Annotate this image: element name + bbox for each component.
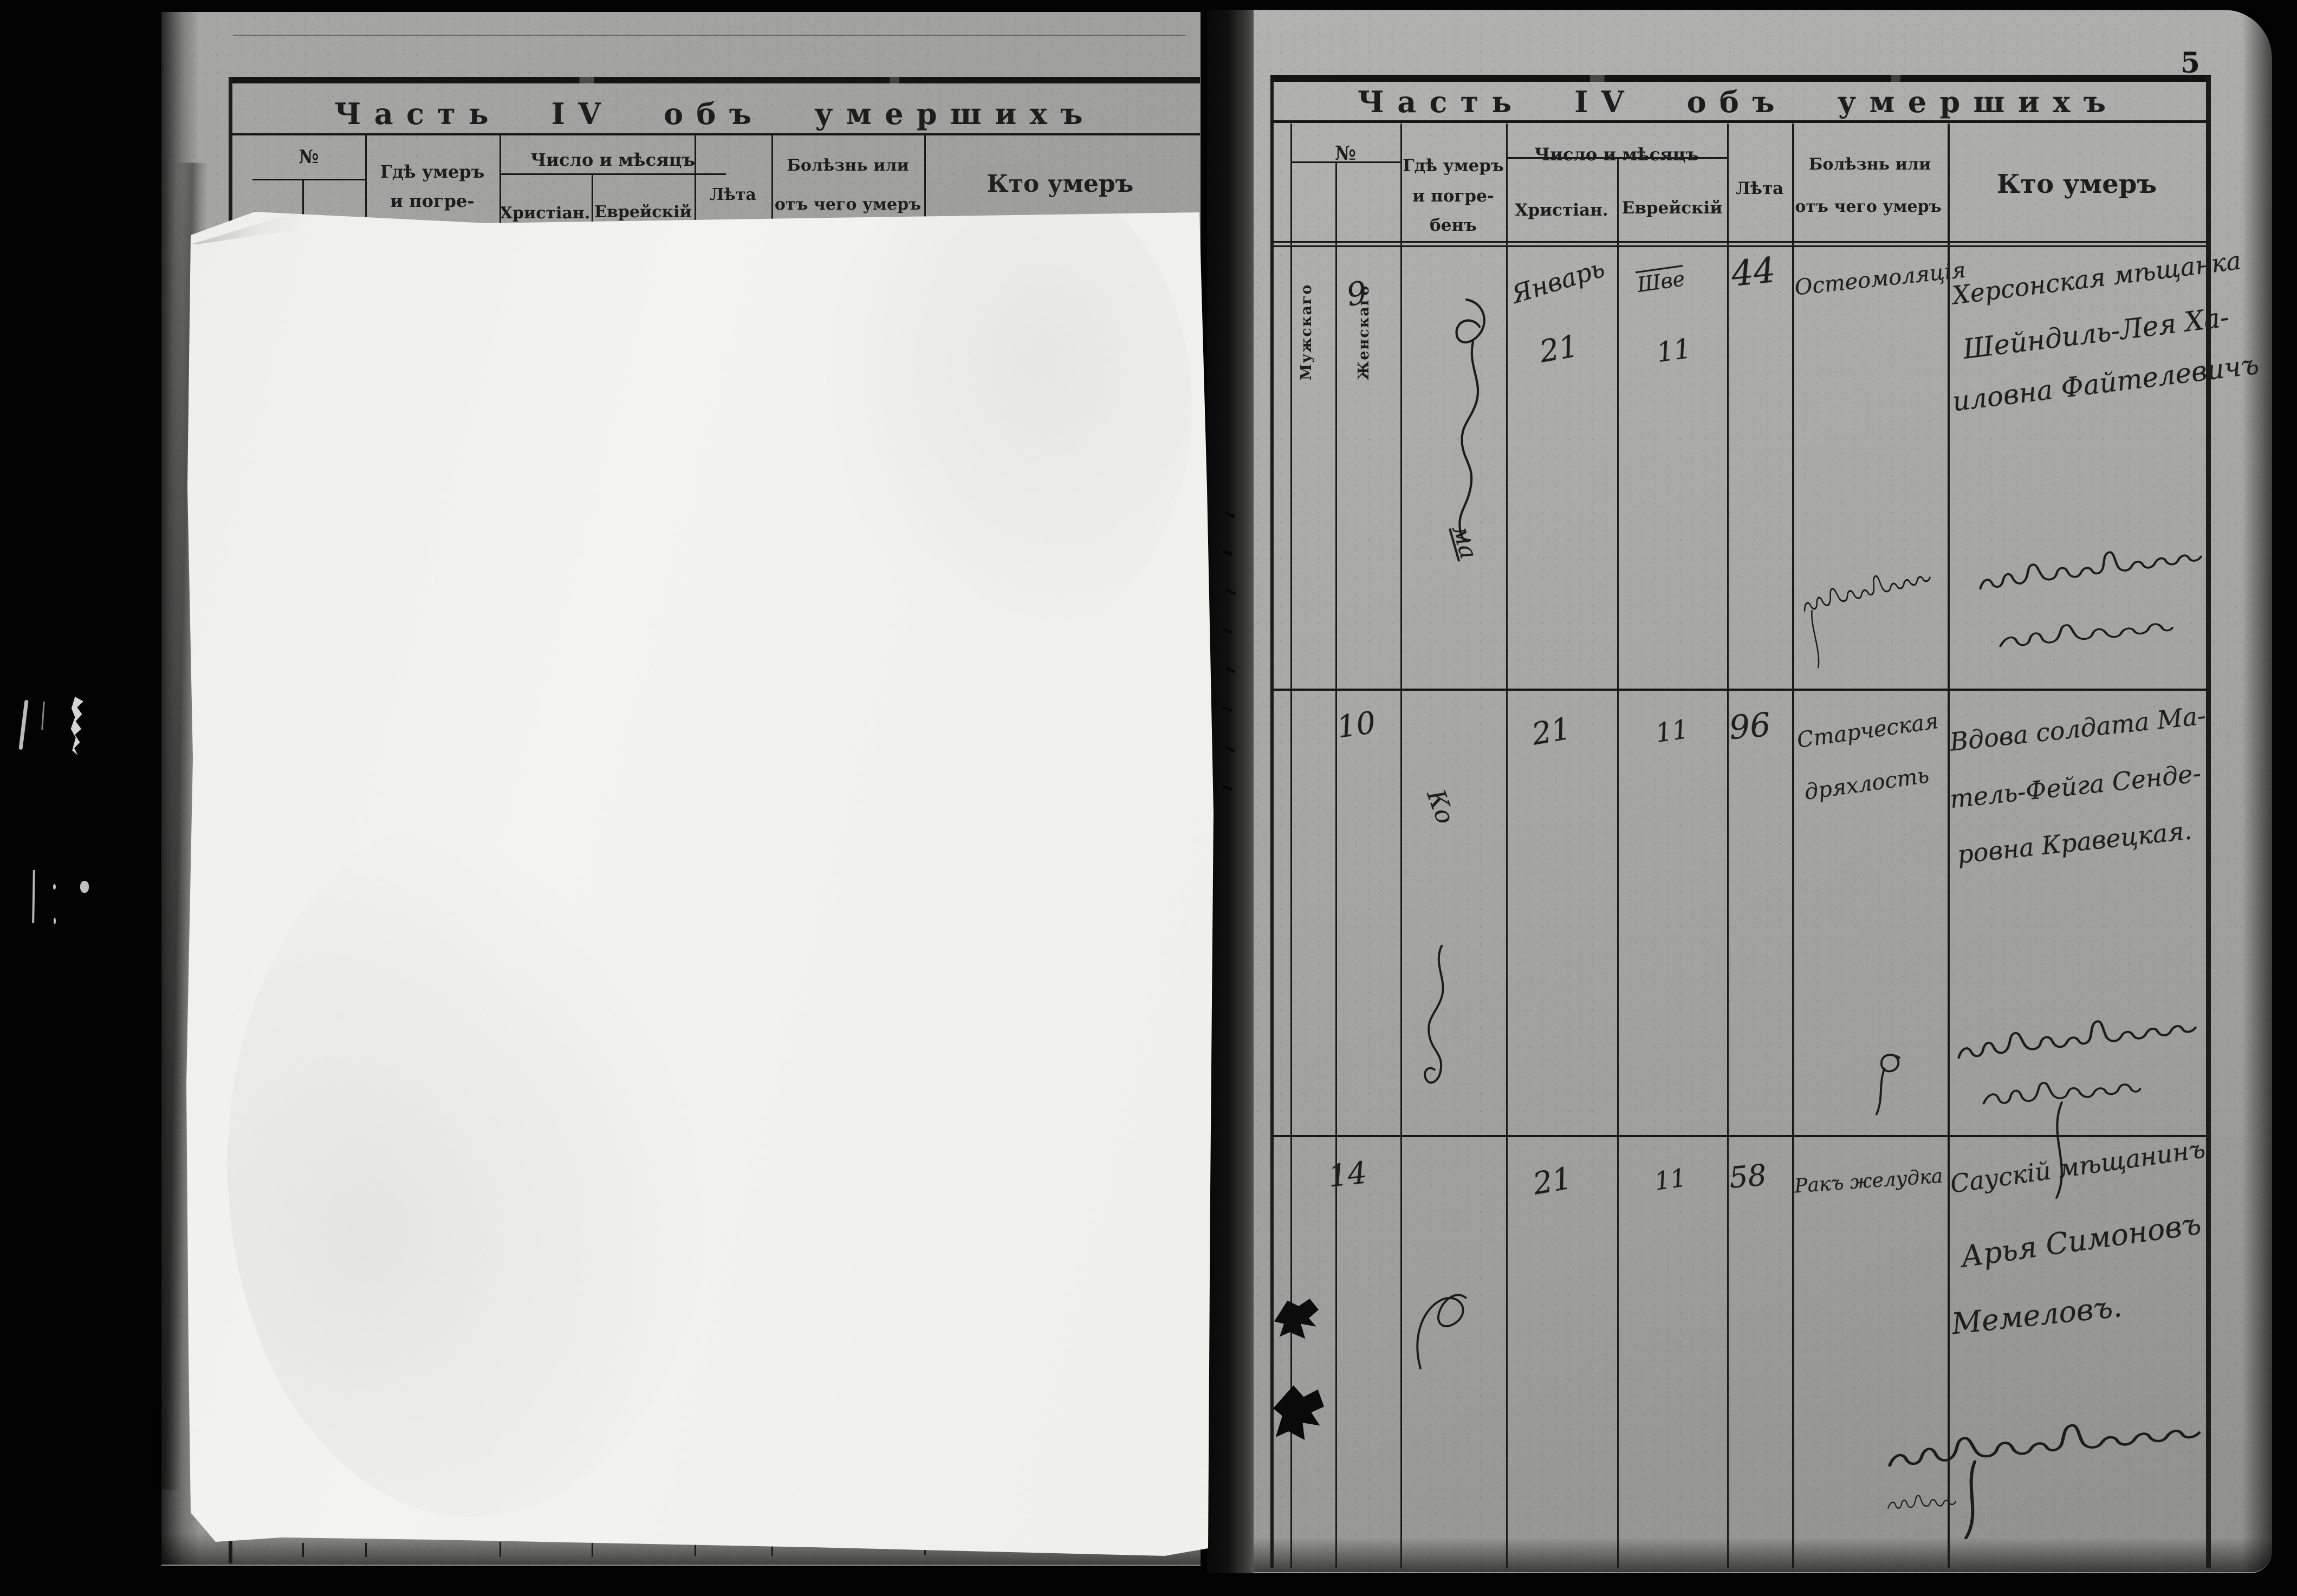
table-line [1727, 124, 1729, 1568]
col-header-no: № [1290, 142, 1400, 165]
table-line [1290, 124, 1292, 1568]
col-header-date-jewish: Еврейскій [1617, 198, 1727, 218]
film-scratch-mark [41, 702, 45, 730]
table-line [1617, 159, 1619, 1568]
hebrew-script-fragment [1852, 1043, 1911, 1124]
table-line [499, 173, 726, 175]
table-line [1270, 79, 1274, 1568]
film-scratch-mark [53, 884, 56, 890]
film-scratch-mark [69, 697, 83, 755]
right-page-edge-shadow [2242, 10, 2272, 1572]
film-scratch-mark [80, 881, 89, 893]
binding-gutter [1207, 10, 1254, 1573]
col-header-who: Кто умеръ [1948, 169, 2206, 199]
entry-day-christian: 21 [1529, 711, 1573, 752]
table-line [233, 35, 1186, 36]
table-line [252, 179, 365, 180]
entry-day-jewish: 11 [1654, 333, 1693, 368]
col-header-date-group: Число и мѣсяцъ [1506, 144, 1727, 165]
section-title: Часть IV объ умершихъ [1270, 85, 2206, 119]
entry-age: 58 [1728, 1158, 1768, 1195]
scan-canvas: Часть IV объ умершихъ № Мужскаго Женскаг… [0, 0, 2297, 1596]
table-line [2206, 76, 2211, 1568]
col-header-no-male: Мужскаго [1298, 207, 1315, 380]
table-line [1335, 163, 1337, 1568]
table-line [1270, 120, 2206, 123]
table-line [302, 1543, 304, 1557]
table-line [1948, 124, 1950, 1568]
table-line [592, 1542, 593, 1557]
hebrew-script-fragment [1886, 1489, 1968, 1520]
place-flourish [1415, 940, 1461, 1097]
table-line [1270, 241, 2206, 243]
table-line [1270, 1135, 2206, 1137]
col-header-age: Лѣта [695, 185, 771, 204]
entry-day-jewish: 11 [1653, 1163, 1688, 1196]
film-scratch-mark [32, 870, 35, 923]
entry-day-jewish: 11 [1653, 714, 1690, 749]
col-header-cause: отъ чего умеръ [1789, 197, 1948, 216]
table-line [1270, 689, 2206, 691]
col-header-where: и погре- [365, 191, 499, 211]
entry-age: 44 [1729, 250, 1777, 295]
col-header-where: и погре- [1400, 186, 1506, 206]
place-flourish [1433, 295, 1495, 544]
entry-day-christian: 21 [1537, 328, 1581, 369]
col-header-where: Гдѣ умеръ [1400, 156, 1506, 176]
sheet-shading [228, 813, 715, 1517]
col-header-cause: Болѣзнь или [771, 156, 924, 175]
right-page-bottom-shadow [1225, 1537, 2272, 1572]
table-line [365, 1543, 367, 1557]
entry-day-christian: 21 [1530, 1160, 1574, 1202]
table-line [229, 133, 1200, 135]
section-title: Часть IV объ умершихъ [230, 96, 1200, 131]
film-scratch-mark [18, 700, 28, 750]
table-line [1270, 245, 2206, 247]
table-line [1792, 124, 1794, 1568]
col-header-cause: Болѣзнь или [1792, 155, 1948, 174]
table-line [1400, 124, 1402, 1568]
col-header-where: Гдѣ умеръ [365, 161, 499, 182]
col-header-date-christian: Христіан. [1506, 200, 1617, 220]
col-header-where: бенъ [1400, 216, 1506, 235]
place-flourish [1406, 1279, 1477, 1381]
col-header-date-group: Число и мѣсяцъ [499, 150, 726, 170]
entry-number: 10 [1335, 705, 1378, 745]
table-top-bar [1270, 75, 2211, 82]
col-header-no: № [252, 146, 365, 168]
col-header-date-christian: Христіан. [499, 204, 591, 223]
col-header-age: Лѣта [1727, 179, 1792, 198]
table-line [1506, 124, 1508, 1568]
col-header-date-jewish: Еврейскій [592, 203, 695, 222]
table-top-bar [230, 77, 1200, 83]
sheet-shading [813, 163, 1192, 650]
entry-age: 96 [1728, 706, 1772, 747]
table-line [499, 1542, 501, 1557]
entry-number: 14 [1327, 1155, 1369, 1194]
film-scratch-mark [54, 918, 56, 924]
